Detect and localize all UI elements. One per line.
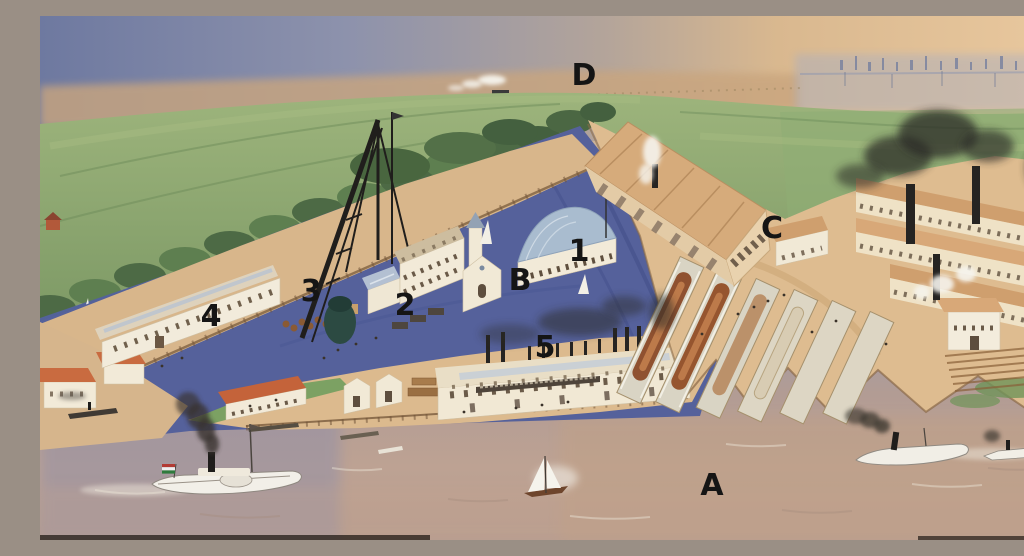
annotation-label-a: A — [700, 471, 723, 501]
painting-canvas — [40, 16, 1024, 540]
annotation-label-c: C — [761, 214, 783, 244]
annotation-label-d: D — [572, 61, 597, 91]
shipyard-painting: D C 1 B 3 2 4 5 A — [40, 16, 1024, 540]
annotation-label-3: 3 — [301, 277, 322, 307]
annotation-label-4: 4 — [201, 302, 222, 332]
hungarian-flag — [162, 464, 175, 474]
annotation-label-1: 1 — [569, 237, 590, 267]
annotation-label-2: 2 — [395, 291, 416, 321]
annotation-label-5: 5 — [535, 333, 556, 363]
small-red-house — [46, 220, 60, 230]
annotation-label-b: B — [509, 266, 532, 296]
